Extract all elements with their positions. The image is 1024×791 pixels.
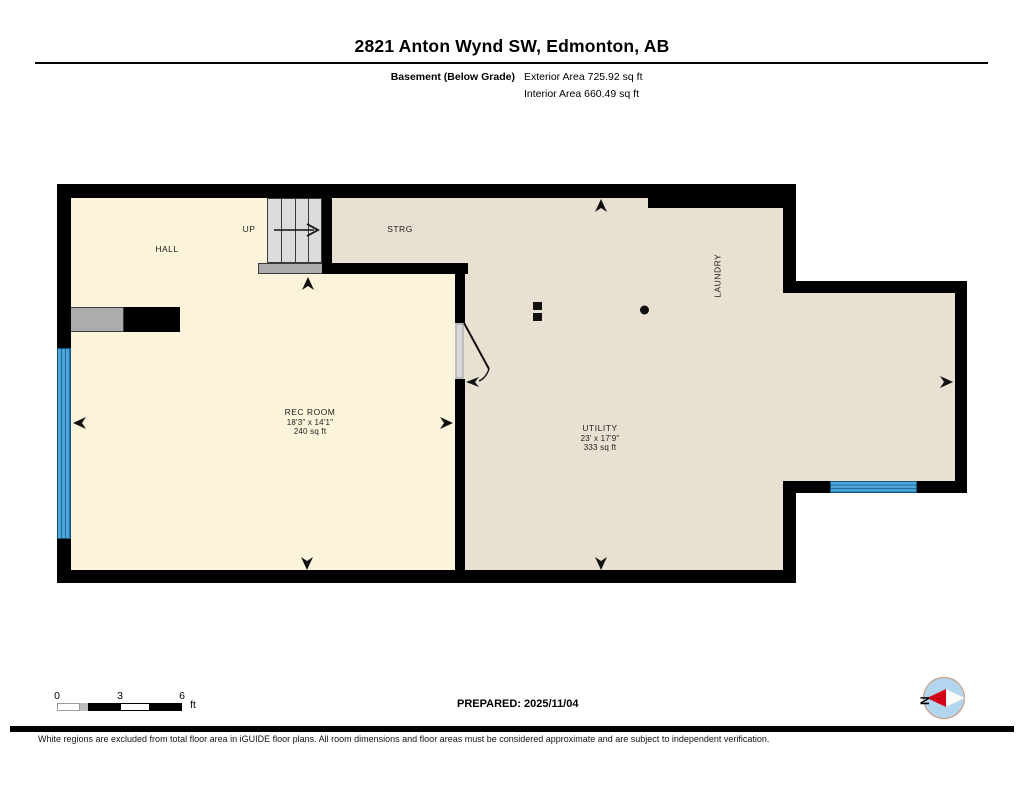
staircase xyxy=(267,198,322,263)
half-wall-gray xyxy=(70,307,124,332)
rec-room-area: 240 sq ft xyxy=(250,427,370,437)
wall-right-lower xyxy=(783,481,796,583)
utility-area: 333 sq ft xyxy=(540,443,660,453)
scale-tick-0: 0 xyxy=(54,690,60,702)
wall-hall-bottom xyxy=(323,263,468,274)
scale-tick-3: 3 xyxy=(117,690,123,702)
rec-room-label-block: REC ROOM 18'3" x 14'1" 240 sq ft xyxy=(250,408,370,437)
storage-label: STRG xyxy=(370,225,430,235)
rec-room-dimensions: 18'3" x 14'1" xyxy=(250,418,370,428)
stair-tread-line xyxy=(308,199,309,262)
utility-dimensions: 23' x 17'9" xyxy=(540,434,660,444)
wall-divider-lower xyxy=(455,379,465,583)
stair-tread-line xyxy=(295,199,296,262)
stair-landing xyxy=(258,263,323,274)
scale-tick-6: 6 xyxy=(179,690,185,702)
disclaimer-text: White regions are excluded from total fl… xyxy=(38,734,769,744)
wall-right-main xyxy=(783,184,796,293)
wall-extension-top xyxy=(783,281,967,293)
utility-extension-fill xyxy=(783,293,955,481)
hall-label: HALL xyxy=(137,245,197,255)
north-compass-icon: N xyxy=(918,678,965,719)
stairs-up-label: UP xyxy=(234,225,264,235)
floor-plan: HALL UP STRG LAUNDRY REC ROOM 18'3" x 14… xyxy=(0,0,1024,791)
half-wall-black xyxy=(124,307,180,332)
footer-divider-bar xyxy=(10,726,1014,732)
stair-tread-line xyxy=(281,199,282,262)
wall-extension-right xyxy=(955,281,967,493)
scale-segment xyxy=(80,703,88,711)
scale-segment xyxy=(150,703,182,711)
scale-segment xyxy=(57,703,80,711)
wall-extension-bottom-right xyxy=(917,481,967,493)
wall-bottom xyxy=(57,570,796,583)
scale-segment xyxy=(88,703,120,711)
compass-north-label: N xyxy=(918,696,932,705)
floorplan-page: { "header": { "title": "2821 Anton Wynd … xyxy=(0,0,1024,791)
scale-unit-label: ft xyxy=(190,699,196,711)
wall-stairs-right xyxy=(322,184,332,274)
rec-room-name: REC ROOM xyxy=(250,408,370,418)
utility-label-block: UTILITY 23' x 17'9" 333 sq ft xyxy=(540,424,660,453)
scale-bar-segments xyxy=(57,703,182,711)
scale-bar: 0 3 6 ft xyxy=(57,690,257,714)
scale-segment xyxy=(120,703,150,711)
window-extension xyxy=(830,481,917,493)
wall-top-notch xyxy=(648,184,786,208)
prepared-date: PREPARED: 2025/11/04 xyxy=(457,698,578,710)
utility-name: UTILITY xyxy=(540,424,660,434)
wall-divider-upper xyxy=(455,263,465,323)
wall-left-upper xyxy=(57,184,71,348)
window-left xyxy=(57,348,71,539)
laundry-label: LAUNDRY xyxy=(713,236,723,316)
